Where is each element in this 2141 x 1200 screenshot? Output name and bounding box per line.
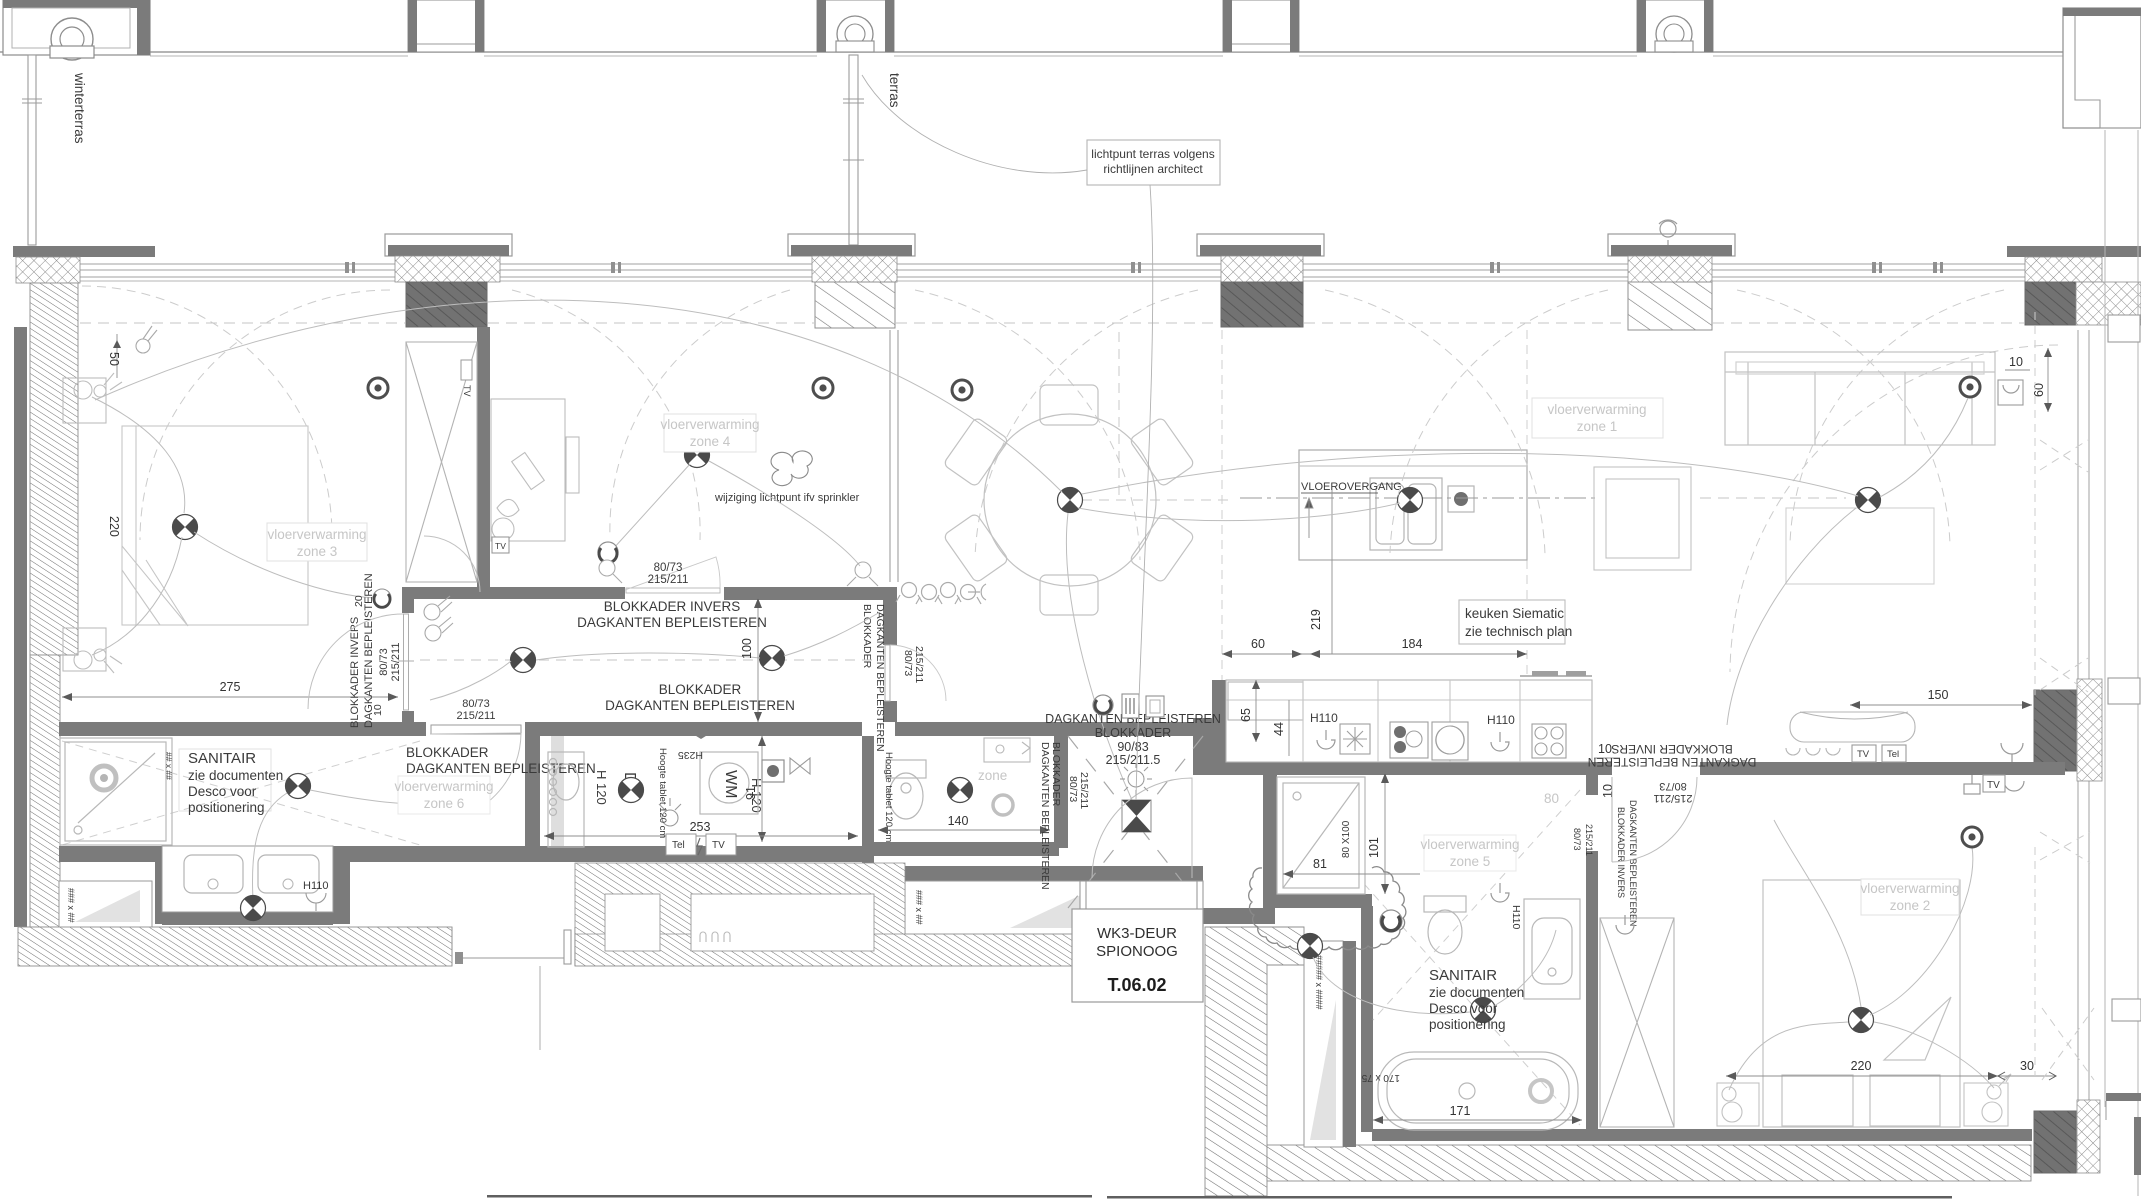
svg-text:44: 44 (1272, 722, 1286, 736)
svg-text:80/73: 80/73 (462, 698, 490, 710)
svg-text:90/83: 90/83 (1117, 740, 1148, 754)
svg-text:vloerverwarming: vloerverwarming (1547, 402, 1646, 417)
svg-text:BLOKKADER: BLOKKADER (861, 604, 873, 669)
svg-text:10: 10 (2009, 355, 2023, 369)
svg-text:BLOKKADER INVERS: BLOKKADER INVERS (604, 599, 741, 614)
svg-text:VLOEROVERGANG: VLOEROVERGANG (1301, 481, 1402, 493)
svg-text:50: 50 (107, 352, 121, 366)
svg-text:H110: H110 (1487, 713, 1515, 727)
svg-text:zie documenten: zie documenten (1429, 985, 1524, 1000)
svg-text:DAGKANTEN BEPLEISTEREN: DAGKANTEN BEPLEISTEREN (406, 761, 596, 776)
svg-text:80/73: 80/73 (378, 648, 390, 676)
svg-text:BLOKKADER INVERS: BLOKKADER INVERS (1616, 807, 1626, 898)
svg-text:215/211: 215/211 (390, 643, 402, 682)
svg-text:zie technisch plan: zie technisch plan (1465, 624, 1572, 639)
svg-text:zone 4: zone 4 (690, 434, 731, 449)
svg-text:terras: terras (887, 73, 902, 108)
svg-text:TV: TV (1857, 749, 1870, 760)
svg-text:10: 10 (1601, 784, 1615, 798)
svg-text:positionering: positionering (1429, 1017, 1506, 1032)
svg-text:vloerverwarming: vloerverwarming (1860, 881, 1959, 896)
svg-text:zone 5: zone 5 (1450, 854, 1491, 869)
svg-text:215/211: 215/211 (1078, 772, 1090, 809)
svg-text:DAGKANTEN BEPLEISTEREN: DAGKANTEN BEPLEISTEREN (874, 604, 886, 752)
svg-text:60: 60 (1251, 637, 1265, 651)
svg-text:zone 6: zone 6 (424, 796, 465, 811)
svg-text:zie documenten: zie documenten (188, 768, 283, 783)
svg-text:65: 65 (1239, 708, 1253, 722)
svg-text:215/211.5: 215/211.5 (1106, 753, 1161, 767)
svg-text:10: 10 (372, 704, 384, 716)
svg-text:SPIONOOG: SPIONOOG (1096, 943, 1178, 960)
svg-text:80/73: 80/73 (654, 562, 683, 574)
svg-text:80: 80 (1544, 791, 1559, 806)
svg-text:SANITAIR: SANITAIR (188, 750, 256, 767)
svg-text:BLOKKADER: BLOKKADER (659, 682, 742, 697)
svg-text:DAGKANTEN BEPLEISTEREN: DAGKANTEN BEPLEISTEREN (1628, 800, 1638, 927)
svg-text:TV: TV (462, 385, 472, 397)
svg-text:80/73: 80/73 (1659, 780, 1687, 792)
svg-text:T.06.02: T.06.02 (1107, 975, 1166, 995)
svg-text:vloerverwarming: vloerverwarming (660, 417, 759, 432)
svg-text:81: 81 (1313, 857, 1327, 871)
svg-text:H110: H110 (303, 880, 328, 892)
svg-text:WK3-DEUR: WK3-DEUR (1097, 925, 1177, 942)
svg-text:80 X100: 80 X100 (1341, 820, 1352, 858)
svg-text:vloerverwarming: vloerverwarming (394, 779, 493, 794)
svg-text:215/211: 215/211 (1584, 824, 1594, 856)
svg-text:253: 253 (690, 820, 711, 834)
svg-text:170 x 75: 170 x 75 (1361, 1072, 1400, 1083)
svg-text:Desco voor: Desco voor (188, 784, 257, 799)
svg-text:keuken Siematic: keuken Siematic (1465, 606, 1564, 621)
svg-text:10: 10 (1598, 742, 1612, 756)
svg-text:184: 184 (1402, 637, 1423, 651)
svg-text:TV: TV (1987, 780, 2000, 791)
svg-text:H110: H110 (1510, 905, 1522, 929)
svg-text:80/73: 80/73 (1067, 776, 1079, 802)
svg-text:101: 101 (1367, 837, 1381, 858)
svg-text:### x ##: ### x ## (914, 890, 924, 925)
svg-text:91: 91 (744, 786, 758, 800)
svg-text:60: 60 (2032, 383, 2046, 397)
svg-text:BLOKKADER INVERS: BLOKKADER INVERS (349, 617, 361, 728)
svg-text:H 120: H 120 (594, 770, 609, 805)
svg-text:zone 1: zone 1 (1577, 419, 1618, 434)
svg-text:220: 220 (107, 516, 121, 537)
svg-text:20: 20 (353, 595, 365, 607)
svg-text:vloerverwarming: vloerverwarming (267, 527, 366, 542)
svg-text:275: 275 (220, 680, 241, 694)
svg-text:## x ##: ## x ## (164, 752, 174, 780)
svg-text:220: 220 (1851, 1059, 1872, 1073)
svg-text:219: 219 (1309, 609, 1323, 630)
svg-text:215/211: 215/211 (1654, 792, 1693, 804)
svg-text:BLOKKADER: BLOKKADER (1095, 726, 1171, 740)
svg-text:positionering: positionering (188, 800, 265, 815)
svg-text:80/73: 80/73 (1572, 828, 1582, 851)
svg-text:215/211: 215/211 (648, 574, 689, 586)
svg-text:80/73: 80/73 (902, 650, 914, 676)
svg-text:lichtpunt terras volgens: lichtpunt terras volgens (1091, 147, 1214, 161)
svg-text:150: 150 (1928, 688, 1949, 702)
svg-text:### x ##: ### x ## (66, 888, 76, 923)
svg-text:zone 2: zone 2 (1890, 898, 1931, 913)
svg-text:Hoogte tablet 120 cm: Hoogte tablet 120 cm (657, 748, 668, 838)
svg-text:140: 140 (948, 814, 969, 828)
svg-text:BLOKKADER: BLOKKADER (1050, 742, 1062, 807)
svg-text:H110: H110 (1310, 711, 1338, 725)
svg-text:SANITAIR: SANITAIR (1429, 967, 1497, 984)
svg-text:H235: H235 (678, 749, 703, 761)
svg-text:Tel: Tel (1887, 749, 1899, 760)
svg-text:wijziging lichtpunt ifv sprink: wijziging lichtpunt ifv sprinkler (714, 492, 860, 504)
svg-text:30: 30 (2020, 1059, 2034, 1073)
svg-text:TV: TV (712, 840, 725, 851)
svg-text:DAGKANTEN BEPLEISTEREN: DAGKANTEN BEPLEISTEREN (605, 698, 795, 713)
svg-text:zone 3: zone 3 (297, 544, 338, 559)
svg-text:DAGKANTEN BEPLEISTEREN: DAGKANTEN BEPLEISTEREN (1588, 755, 1757, 769)
svg-text:DAGKANTEN BEPLEISTEREN: DAGKANTEN BEPLEISTEREN (577, 615, 767, 630)
svg-text:BLOKKADER INVERS: BLOKKADER INVERS (1611, 742, 1732, 756)
svg-text:171: 171 (1450, 1104, 1471, 1118)
svg-text:winterterras: winterterras (72, 72, 87, 144)
svg-text:215/211: 215/211 (913, 646, 925, 683)
svg-text:vloerverwarming: vloerverwarming (1420, 837, 1519, 852)
svg-text:Tel: Tel (672, 840, 685, 851)
svg-text:100: 100 (740, 638, 754, 659)
svg-text:BLOKKADER: BLOKKADER (406, 745, 489, 760)
svg-text:DAGKANTEN BEPLEISTEREN: DAGKANTEN BEPLEISTEREN (1039, 742, 1051, 890)
svg-text:Desco voor: Desco voor (1429, 1001, 1498, 1016)
svg-text:215/211: 215/211 (457, 710, 496, 722)
svg-text:TV: TV (495, 541, 506, 551)
svg-text:richtlijnen architect: richtlijnen architect (1103, 162, 1203, 176)
svg-text:WM: WM (722, 770, 739, 798)
svg-text:zone: zone (978, 768, 1007, 783)
